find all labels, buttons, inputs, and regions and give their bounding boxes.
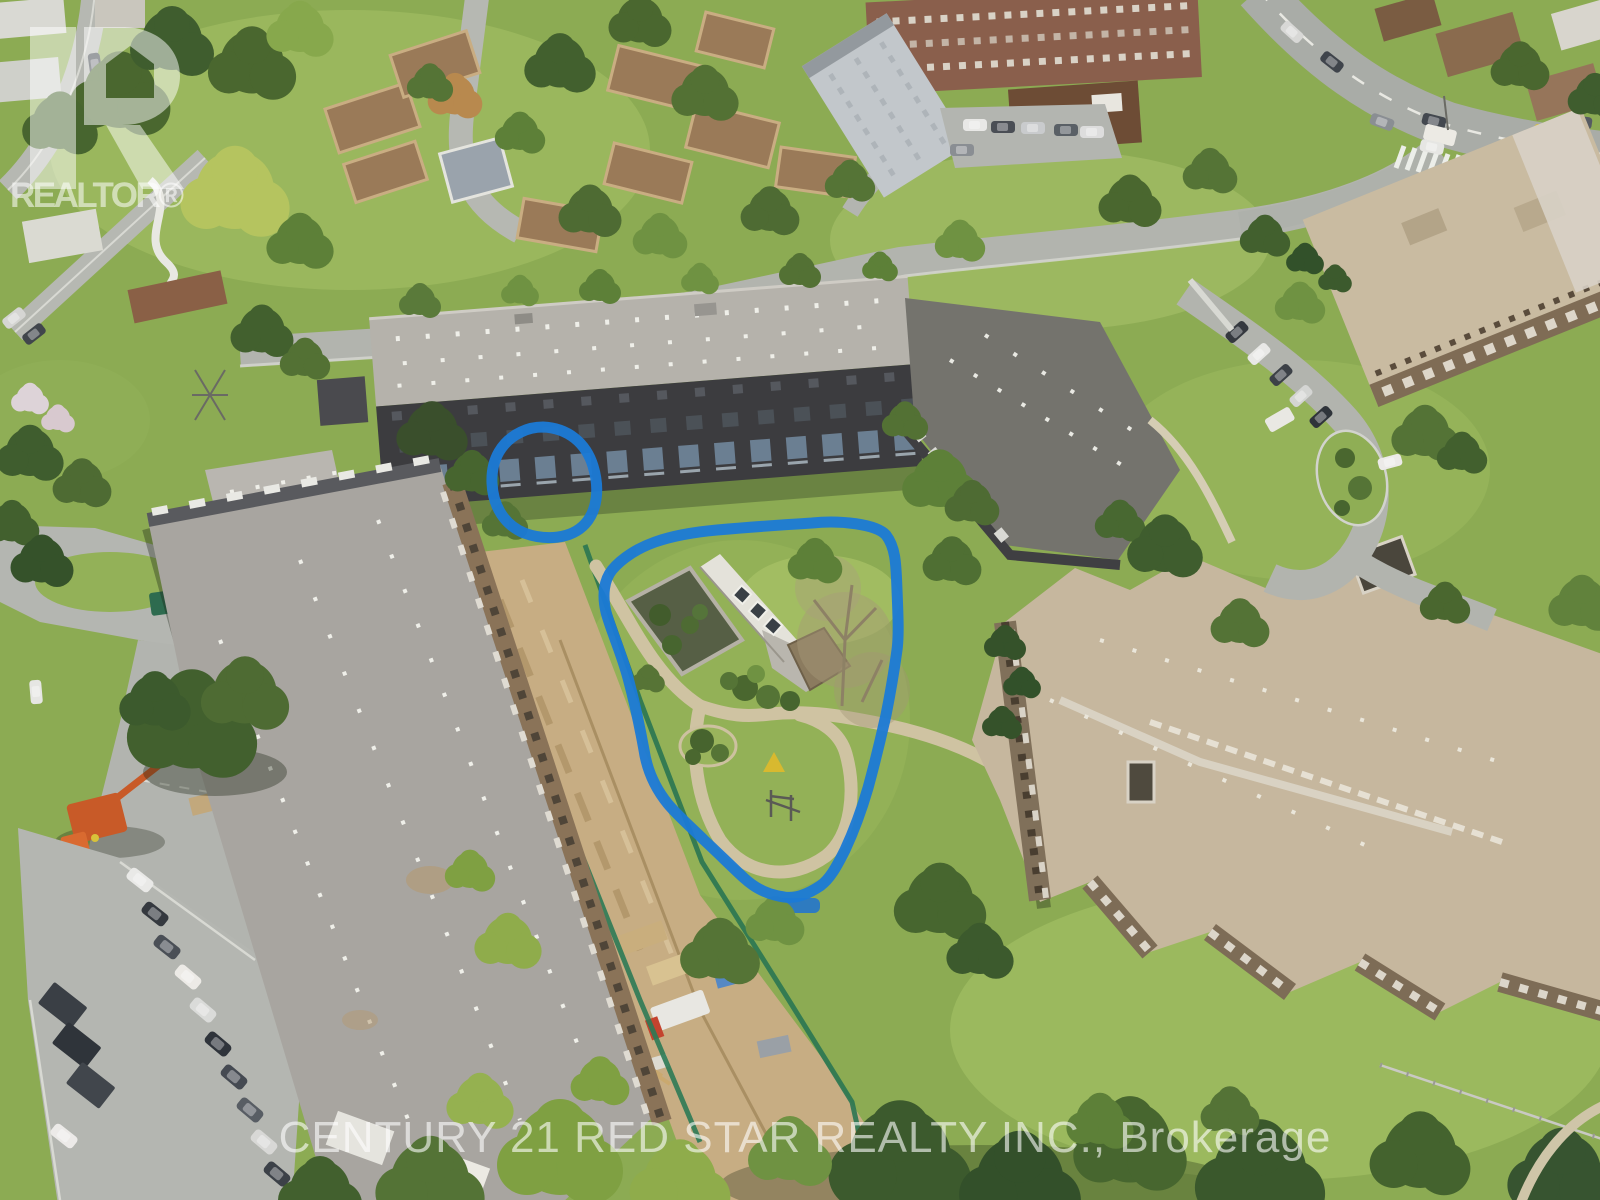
realtor-logo-bar (30, 27, 76, 189)
brokerage-watermark: CENTURY 21 RED STAR REALTY INC., Brokera… (279, 1113, 1332, 1162)
realtor-logo-text: REALTOR® (10, 176, 185, 215)
screenshot-root: REALTOR® CENTURY 21 RED STAR REALTY INC.… (0, 0, 1600, 1200)
aerial-photo: REALTOR® CENTURY 21 RED STAR REALTY INC.… (0, 0, 1600, 1200)
